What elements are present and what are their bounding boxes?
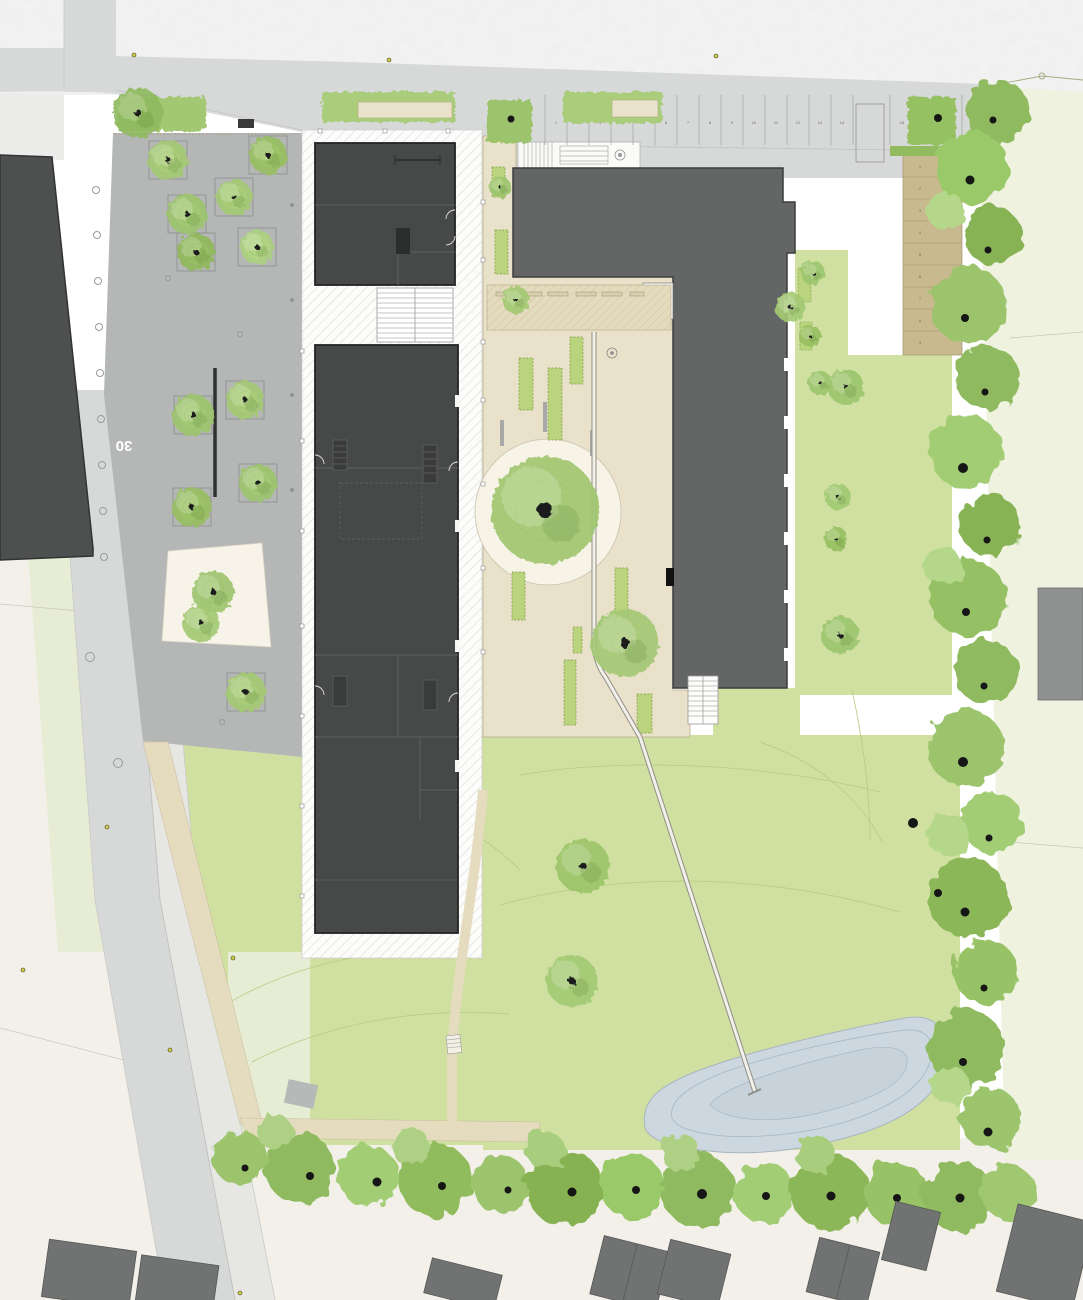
north-road xyxy=(64,0,116,92)
bench xyxy=(630,292,644,296)
speed-limit-marking: 30 xyxy=(116,437,133,454)
bench xyxy=(602,292,622,296)
svg-text:15: 15 xyxy=(900,120,905,125)
svg-text:10: 10 xyxy=(752,120,757,125)
bench xyxy=(543,402,547,432)
bench xyxy=(500,420,504,446)
svg-text:13: 13 xyxy=(818,120,823,125)
bench-black xyxy=(238,119,254,128)
long-hall-building xyxy=(315,345,459,933)
svg-text:14: 14 xyxy=(840,120,845,125)
corner-planter xyxy=(908,97,956,145)
site-plan-drawing: 30 xyxy=(0,0,1083,1300)
southwest-stair xyxy=(688,676,718,724)
bench xyxy=(548,292,568,296)
north-hall-building xyxy=(315,143,455,285)
east-building-door xyxy=(666,568,674,586)
loading-dock xyxy=(518,142,640,168)
bench xyxy=(576,292,596,296)
site-plan: 30 xyxy=(0,0,1083,1300)
svg-text:12: 12 xyxy=(796,120,801,125)
stair-connector xyxy=(377,288,453,342)
east-neighbor-building xyxy=(1038,588,1083,700)
